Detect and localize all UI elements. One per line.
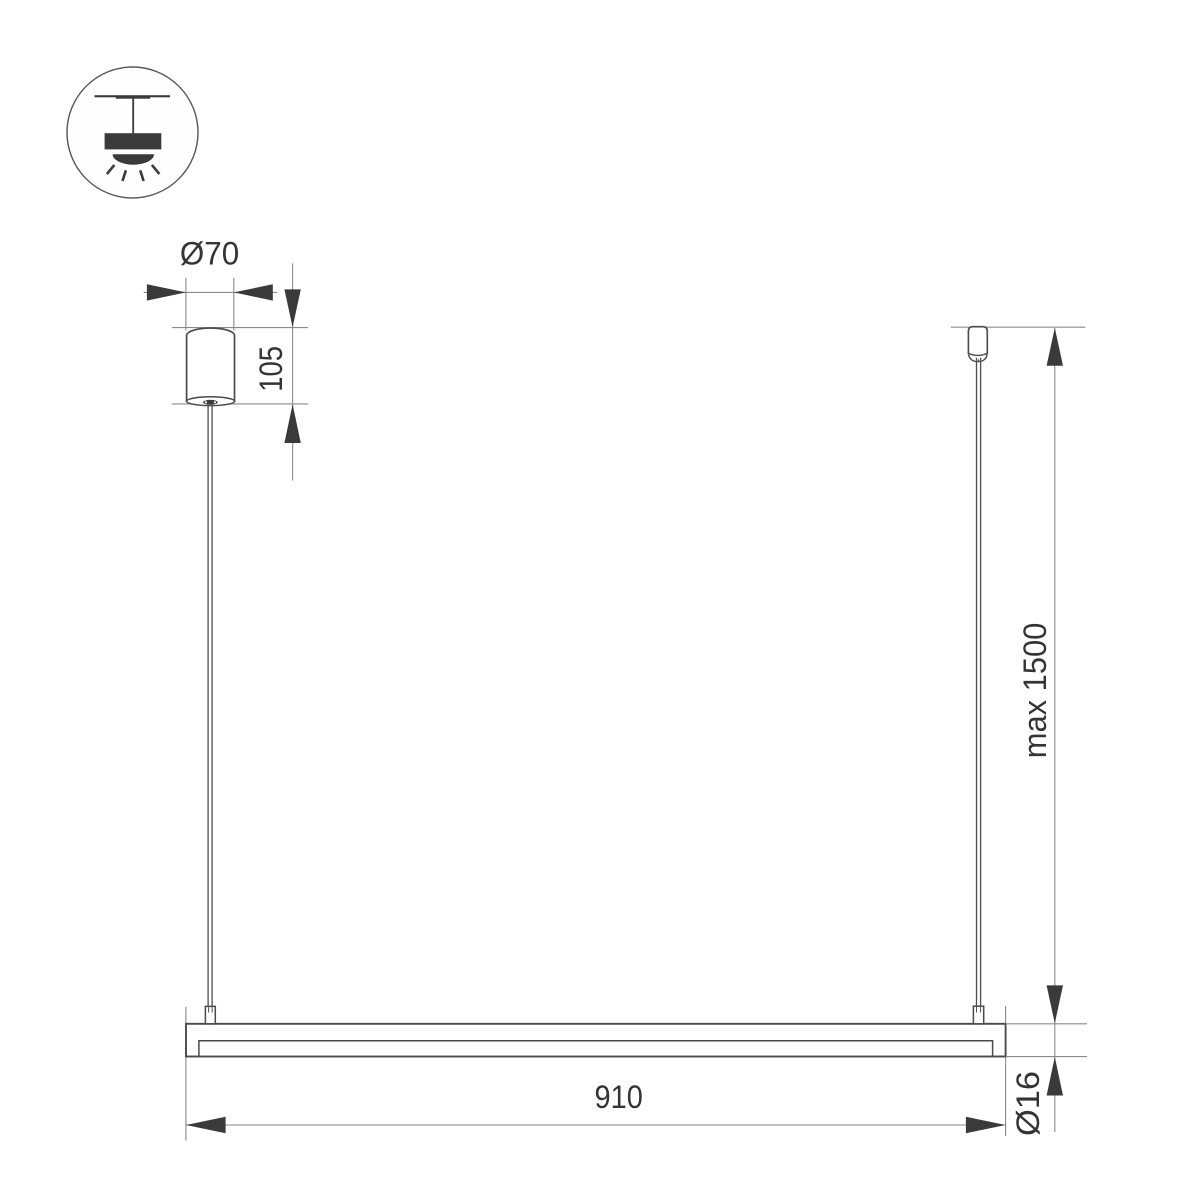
svg-text:910: 910 [595,1079,643,1115]
svg-text:max 1500: max 1500 [1017,623,1053,759]
svg-text:Ø16: Ø16 [1010,1071,1046,1136]
svg-text:105: 105 [253,346,289,392]
svg-text:Ø70: Ø70 [180,235,239,271]
